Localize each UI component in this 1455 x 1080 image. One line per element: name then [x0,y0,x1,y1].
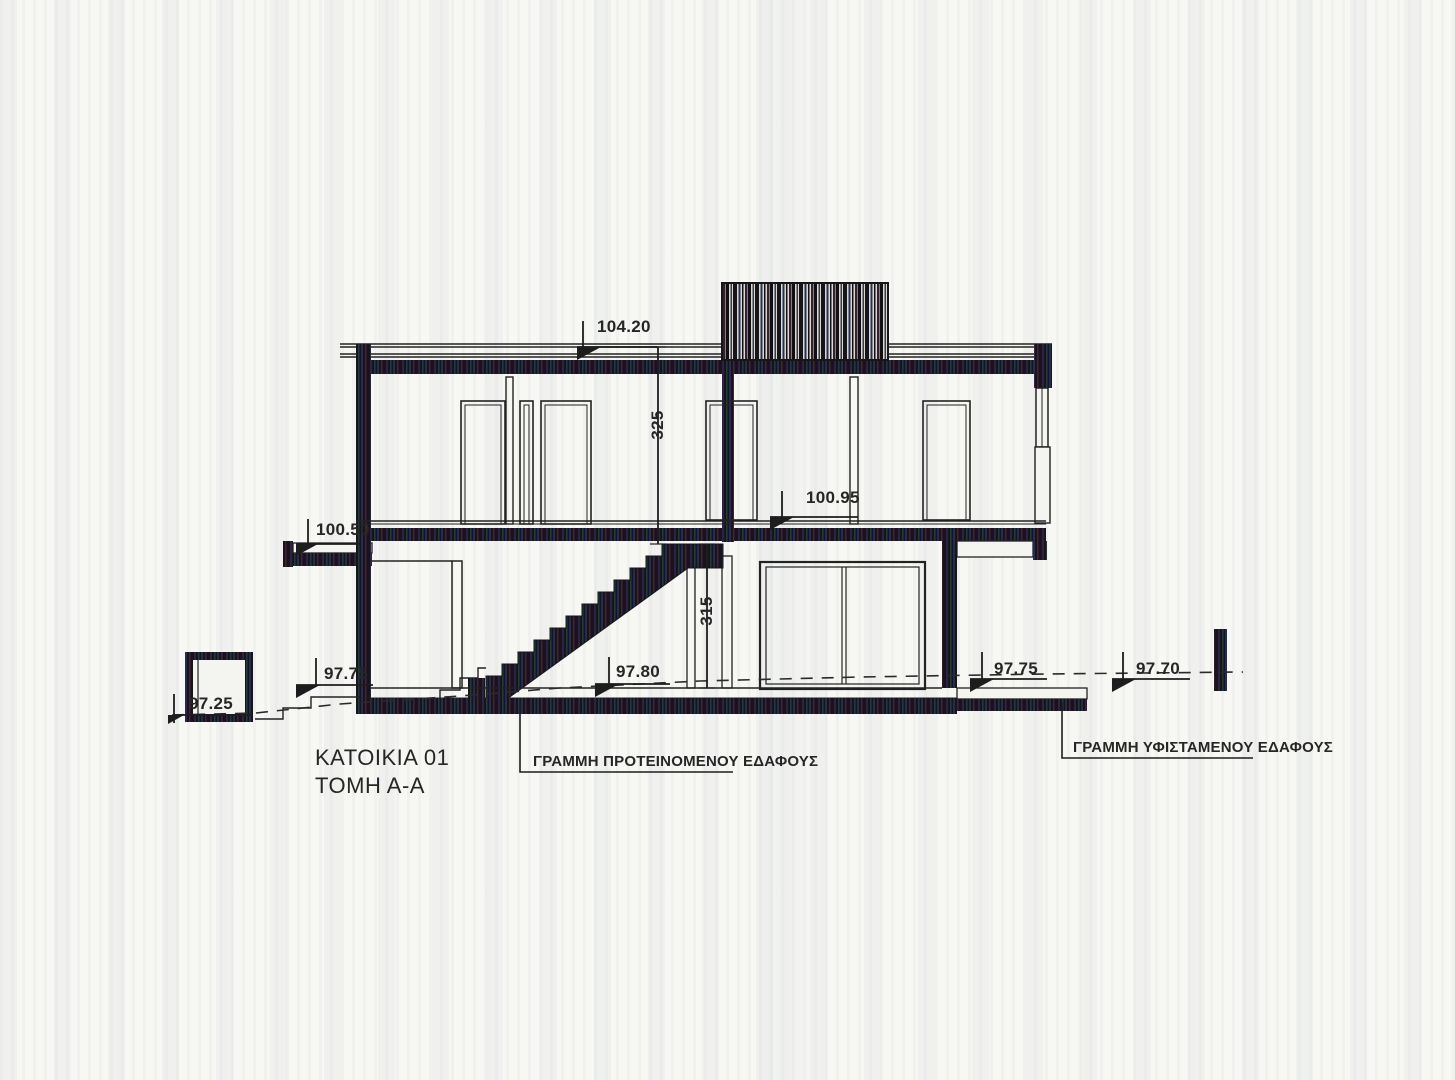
ground-slab [255,688,1087,719]
drawing-title-line2: ΤΟΜΗ Α-Α [315,772,449,800]
elevation-ground-interior: 97.80 [616,662,660,682]
right-boundary-post [1214,629,1227,691]
elevation-balcony-left: 100.50 [316,520,370,540]
entrance-door [452,561,462,688]
right-overhang [957,541,1033,557]
ground-floor-window [760,562,925,689]
roof-bulkhead [722,283,888,360]
existing-ground-label: ΓΡΑΜΜΗ ΥΦΙΣΤΑΜΕΝΟΥ ΕΔΑΦΟΥΣ [1073,739,1333,756]
drawing-title-line1: ΚΑΤΟΙΚΙΑ 01 [315,744,449,772]
elevation-ground-left: 97.75 [324,664,368,684]
drawing-title: ΚΑΤΟΙΚΙΑ 01 ΤΟΜΗ Α-Α [315,744,449,800]
section-linework [0,0,1455,1080]
dim-upper-height: 325 [648,397,668,453]
upper-floor-doors [461,401,970,524]
drawing-sheet: 104.20 325 100.95 100.50 315 97.75 97.80… [0,0,1455,1080]
proposed-ground-label: ΓΡΑΜΜΗ ΠΡΟΤΕΙΝΟΜΕΝΟΥ ΕΔΑΦΟΥΣ [533,753,818,770]
right-paving [957,688,1087,699]
staircase [440,544,723,704]
elevation-roof: 104.20 [597,317,651,337]
elevation-ground-right-far: 97.70 [1136,659,1180,679]
roof-slab [340,344,1052,374]
dim-lower-height: 315 [697,583,717,639]
elevation-ground-right-near: 97.75 [994,659,1038,679]
elevation-planter: 97.25 [189,694,233,714]
elevation-upper-floor: 100.95 [806,488,860,508]
